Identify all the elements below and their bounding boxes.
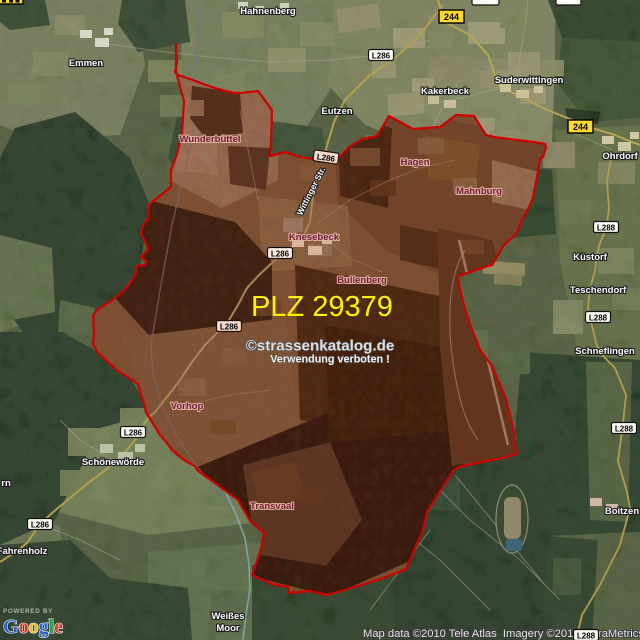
svg-text:Emmen: Emmen [69, 58, 104, 69]
svg-text:Wunderbüttel: Wunderbüttel [179, 134, 240, 145]
svg-text:Mahnburg: Mahnburg [456, 186, 502, 197]
svg-text:L286: L286 [271, 250, 290, 259]
svg-text:Suderwittingen: Suderwittingen [495, 75, 564, 86]
svg-text:PLZ 29379: PLZ 29379 [251, 291, 393, 323]
svg-text:244: 244 [444, 12, 459, 22]
svg-text:©strassenkatalog.de: ©strassenkatalog.de [246, 338, 395, 355]
svg-text:Google: Google [3, 616, 63, 638]
svg-text:Knesebeck: Knesebeck [289, 232, 340, 243]
svg-text:Kakerbeck: Kakerbeck [421, 86, 470, 97]
svg-text:Transvaal: Transvaal [250, 501, 294, 512]
svg-text:Küstorf: Küstorf [573, 252, 608, 263]
svg-text:Ohrdorf: Ohrdorf [602, 151, 638, 162]
svg-text:L288: L288 [615, 425, 634, 434]
svg-text:POWERED BY: POWERED BY [3, 608, 53, 615]
svg-text:Schneflingen: Schneflingen [575, 346, 635, 357]
svg-text:Boitzen: Boitzen [605, 506, 640, 517]
svg-text:Eutzen: Eutzen [321, 106, 352, 117]
svg-text:L286: L286 [31, 521, 50, 530]
svg-text:L288: L288 [597, 224, 616, 233]
svg-text:L286: L286 [372, 52, 391, 61]
svg-text:L286: L286 [220, 323, 239, 332]
svg-text:Hagen: Hagen [400, 157, 429, 168]
svg-text:L286: L286 [124, 429, 143, 438]
svg-text:rn: rn [1, 478, 11, 489]
svg-text:Vorhop: Vorhop [171, 401, 204, 412]
svg-text:Weißes: Weißes [211, 611, 244, 622]
svg-text:Fahrenholz: Fahrenholz [0, 546, 48, 557]
svg-text:Teschendorf: Teschendorf [570, 285, 627, 296]
svg-text:Hahnenberg: Hahnenberg [240, 6, 296, 17]
svg-text:L288: L288 [577, 632, 596, 640]
svg-text:Bullenberg: Bullenberg [337, 275, 387, 286]
svg-text:Moor: Moor [216, 623, 240, 634]
svg-text:Schönewörde: Schönewörde [82, 457, 144, 468]
svg-text:Verwendung verboten !: Verwendung verboten ! [270, 354, 389, 366]
svg-text:244: 244 [573, 122, 588, 132]
svg-text:L288: L288 [589, 314, 608, 323]
